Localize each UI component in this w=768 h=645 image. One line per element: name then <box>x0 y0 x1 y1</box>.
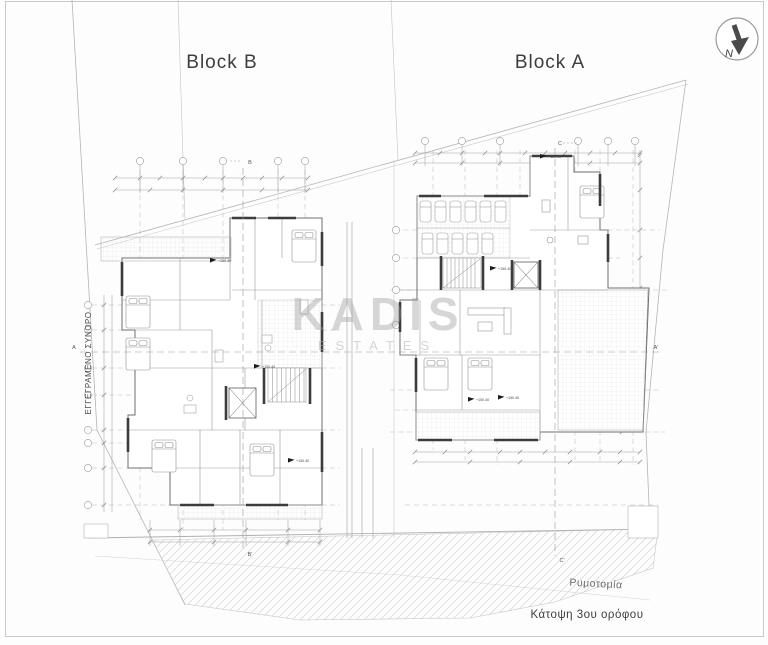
north-arrow-icon: N <box>716 18 758 60</box>
north-letter: N <box>725 48 733 60</box>
svg-text:+150.40: +150.40 <box>296 459 309 463</box>
section-marker-b: B <box>248 160 252 166</box>
block-b-title: Block B <box>186 52 257 73</box>
block-b-elevator <box>229 388 256 418</box>
block-b-plan <box>101 218 322 519</box>
floor-plan-sheet: A A' B B' C C' +150.40 +150.40 +150.40 +… <box>0 0 768 645</box>
section-marker-c-prime: C' <box>559 558 564 564</box>
svg-text:+150.40: +150.40 <box>506 396 519 400</box>
svg-text:+150.40: +150.40 <box>218 259 231 263</box>
block-a-stair <box>443 258 481 288</box>
section-marker-a: A <box>72 345 76 351</box>
floor-plan-drawing: A A' B B' C C' +150.40 +150.40 +150.40 +… <box>0 0 768 645</box>
watermark-name: KADIS <box>291 288 464 340</box>
block-b-stair <box>268 368 306 402</box>
section-marker-a-prime: A' <box>654 345 659 351</box>
registered-boundary-label: ΕΓΓΕΓΡΑΜΕΝΟ ΣΥΝΟΡΟ <box>84 311 93 414</box>
svg-text:+150.40: +150.40 <box>262 365 275 369</box>
drawing-caption: Κάτοψη 3ου ορόφου <box>531 609 644 621</box>
block-a-elevator <box>514 262 538 288</box>
watermark-subtitle: ESTATES <box>318 338 438 353</box>
block-a-title: Block A <box>515 52 585 73</box>
svg-text:+150.40: +150.40 <box>476 398 489 402</box>
svg-text:+150.40: +150.40 <box>548 155 561 159</box>
road-strip <box>84 506 658 620</box>
section-marker-b-prime: B' <box>248 552 253 558</box>
svg-text:+150.40: +150.40 <box>498 267 511 271</box>
section-marker-c: C <box>558 141 562 147</box>
